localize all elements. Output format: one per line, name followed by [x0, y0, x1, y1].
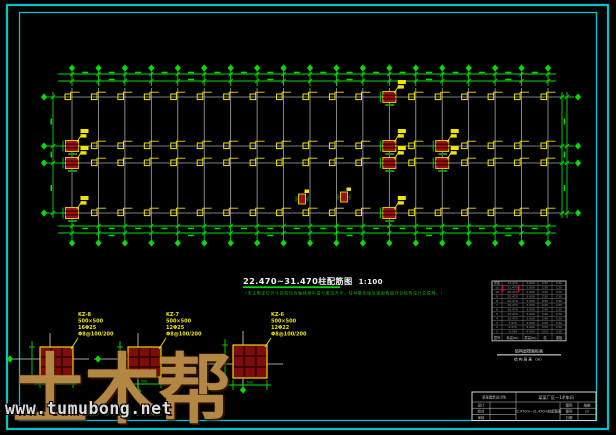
axis-bubble: [122, 239, 128, 246]
plan-title-scale: 1:100: [359, 278, 383, 286]
table-cell: 7: [496, 303, 498, 307]
watermark-url: www.tumubong.net: [5, 399, 172, 418]
red-column: [378, 196, 406, 222]
table-cell: 3: [496, 321, 498, 325]
axis-bubble: [280, 64, 286, 71]
axis-bubble: [69, 64, 75, 71]
table-cell: 3.000: [526, 290, 535, 294]
svg-text:12Φ22: 12Φ22: [271, 325, 290, 331]
axis-bubble: [240, 386, 246, 393]
table-cell: 3.000: [526, 321, 535, 325]
svg-text:500×500: 500×500: [271, 319, 297, 325]
detail-label: KZ-7: [166, 312, 179, 318]
table-cell: C35: [542, 290, 548, 294]
axis-bubble: [466, 64, 472, 71]
grid-lines: [60, 88, 560, 222]
axis-bubble: [386, 64, 392, 71]
axis-bubble: [41, 209, 47, 216]
table-cell: 3.000: [526, 281, 535, 285]
table-cell: C40: [542, 303, 548, 307]
table-cell: C30: [556, 321, 562, 325]
axis-bubble: [575, 159, 581, 166]
axis-bubble: [333, 239, 339, 246]
table-cell: 6: [496, 308, 498, 312]
table-cell: C30: [556, 290, 562, 294]
table-cell: 3.000: [526, 303, 535, 307]
table-cell: 1: [496, 330, 498, 334]
axis-bubble: [41, 93, 47, 100]
table-cell: C30: [556, 303, 562, 307]
svg-text:结施: 结施: [584, 403, 591, 408]
table-cell: -0.030: [508, 330, 518, 334]
plan-columns: [61, 80, 556, 222]
table-cell: 13.470: [507, 312, 518, 316]
table-cell: 3.000: [526, 325, 535, 329]
axis-bubble: [492, 64, 498, 71]
table-cell: C30: [556, 286, 562, 290]
table-cell: 34.470: [507, 281, 518, 285]
svg-text:Φ8@100/200: Φ8@100/200: [271, 332, 307, 338]
axis-bubble: [439, 64, 445, 71]
table-cell: 3.000: [526, 316, 535, 320]
table-cell: 4.470: [508, 325, 517, 329]
axis-bubble: [575, 93, 581, 100]
axis-bubble: [518, 64, 524, 71]
table-cell: 3.000: [526, 299, 535, 303]
axis-bubble: [413, 64, 419, 71]
svg-text:审核: 审核: [478, 415, 485, 420]
small-red-column: [338, 188, 351, 203]
axis-bubble: [41, 159, 47, 166]
axis-bubble: [545, 239, 551, 246]
table-cell: 22.470: [507, 299, 518, 303]
caption-divider: [497, 354, 561, 355]
table-cell: C30: [556, 281, 562, 285]
red-column: [378, 80, 406, 106]
axis-bubble: [254, 64, 260, 71]
table-cell: C30: [556, 325, 562, 329]
table-highlight-mark: [518, 286, 519, 292]
table-cell: C30: [556, 330, 562, 334]
detail-label: KZ-8: [78, 312, 91, 318]
table-cell: 2: [496, 325, 498, 329]
axis-bubble: [386, 239, 392, 246]
axis-bubble: [307, 239, 313, 246]
small-red-column: [296, 190, 309, 205]
table-cell: C30: [556, 294, 562, 298]
table-header-cell: 梁板: [556, 335, 563, 340]
cad-sheet: 22.470~31.470柱配筋图1:100 （未注明定位尺寸的柱均为轴线居中或…: [0, 0, 616, 435]
table-cell: 7.470: [508, 321, 517, 325]
table-cell: C35: [542, 299, 548, 303]
svg-text:500×500: 500×500: [166, 319, 192, 325]
storey-table-caption-top: 结构层楼面标高: [515, 348, 543, 354]
axis-bubble: [360, 64, 366, 71]
axis-bubble: [228, 239, 234, 246]
table-cell: 10: [495, 290, 499, 294]
table-cell: C40: [542, 312, 548, 316]
axis-bubble: [466, 239, 472, 246]
axis-bubble: [254, 239, 260, 246]
table-highlight-mark: [502, 286, 503, 292]
table-cell: 5: [496, 312, 498, 316]
table-cell: 28.470: [507, 290, 518, 294]
axis-bubble: [148, 239, 154, 246]
axis-bubble: [413, 239, 419, 246]
plan-note: （未注明定位尺寸的柱均为轴线居中或与梁边齐平，柱纵筋连接及锚固构造详见结构设计总…: [243, 291, 445, 296]
table-cell: 3.000: [526, 308, 535, 312]
axis-bubble: [95, 64, 101, 71]
table-cell: C30: [556, 316, 562, 320]
table-cell: C30: [542, 286, 548, 290]
axis-bubble: [280, 239, 286, 246]
plan-title: 22.470~31.470柱配筋图1:100: [243, 276, 383, 286]
axis-bubble: [545, 64, 551, 71]
svg-text:图号: 图号: [566, 409, 573, 414]
axis-bubble: [575, 209, 581, 216]
table-cell: 3.000: [526, 312, 535, 316]
storey-table-caption-bottom: 结 构 层 高 （m）: [514, 357, 544, 362]
table-cell: C45: [542, 316, 548, 320]
title-underline: [243, 286, 340, 288]
detail-label: KZ-6: [271, 312, 284, 318]
red-column: [61, 129, 89, 155]
table-cell: 19.470: [507, 303, 518, 307]
table-cell: C30: [556, 312, 562, 316]
table-cell: 4: [496, 316, 498, 320]
table-header-cell: 层号: [494, 335, 500, 340]
table-cell: C30: [542, 281, 548, 285]
company-name: 某某建筑设计院: [482, 395, 506, 400]
svg-text:设计: 设计: [478, 403, 485, 408]
plan-title-text: 22.470~31.470柱配筋图: [243, 276, 353, 286]
title-block: 某某建筑设计院 某某厂区—1#车间 设计 校对 审核 22.470m~31.47…: [472, 392, 596, 421]
table-cell: 4.500: [526, 330, 535, 334]
table-cell: 9: [496, 294, 498, 298]
project-name: 某某厂区—1#车间: [538, 394, 574, 401]
table-cell: C30: [556, 308, 562, 312]
table-cell: 3.000: [526, 286, 535, 290]
table-cell: C40: [542, 308, 548, 312]
axis-bubble: [518, 239, 524, 246]
table-cell: 屋面: [494, 280, 500, 285]
table-cell: 8: [496, 299, 498, 303]
table-cell: 11: [495, 286, 499, 290]
svg-text:校对: 校对: [478, 409, 485, 414]
axis-bubble: [122, 64, 128, 71]
table-header-cell: 层高(m): [525, 335, 537, 340]
red-column: [61, 196, 89, 222]
axis-bubble: [575, 142, 581, 149]
table-header-cell: 标高(m): [507, 335, 519, 340]
axis-bubble: [148, 64, 154, 71]
table-cell: 25.470: [507, 294, 518, 298]
table-cell: C30: [556, 299, 562, 303]
table-cell: C50: [542, 330, 548, 334]
axis-bubble: [492, 239, 498, 246]
sheet-title: 22.470m~31.470m柱配筋图: [515, 409, 562, 414]
table-cell: 31.470: [507, 286, 518, 290]
svg-text:500×500: 500×500: [78, 319, 104, 325]
axis-bubble: [175, 64, 181, 71]
red-column: [378, 129, 406, 155]
axis-bubble: [307, 64, 313, 71]
svg-text:500: 500: [247, 381, 255, 385]
axis-bubble: [175, 239, 181, 246]
watermark-logo: 土木帮: [12, 328, 228, 435]
axis-bubble: [201, 239, 207, 246]
dimension-lines: [41, 64, 581, 246]
svg-text:图别: 图别: [566, 403, 573, 408]
axis-bubble: [439, 239, 445, 246]
svg-text:12: 12: [585, 410, 589, 414]
axis-bubble: [41, 142, 47, 149]
table-cell: C50: [542, 325, 548, 329]
axis-bubble: [360, 239, 366, 246]
axis-bubble: [333, 64, 339, 71]
table-cell: C45: [542, 321, 548, 325]
svg-text:日期: 日期: [566, 415, 573, 420]
axis-bubble: [228, 64, 234, 71]
storey-table: 屋面34.4703.000C30C301131.4703.000C30C3010…: [492, 280, 566, 341]
table-cell: C35: [542, 294, 548, 298]
axis-bubble: [69, 239, 75, 246]
red-column: [431, 129, 459, 155]
axis-bubble: [201, 64, 207, 71]
axis-bubble: [95, 239, 101, 246]
table-cell: 3.000: [526, 294, 535, 298]
table-cell: 16.470: [507, 308, 518, 312]
table-cell: 10.470: [507, 316, 518, 320]
